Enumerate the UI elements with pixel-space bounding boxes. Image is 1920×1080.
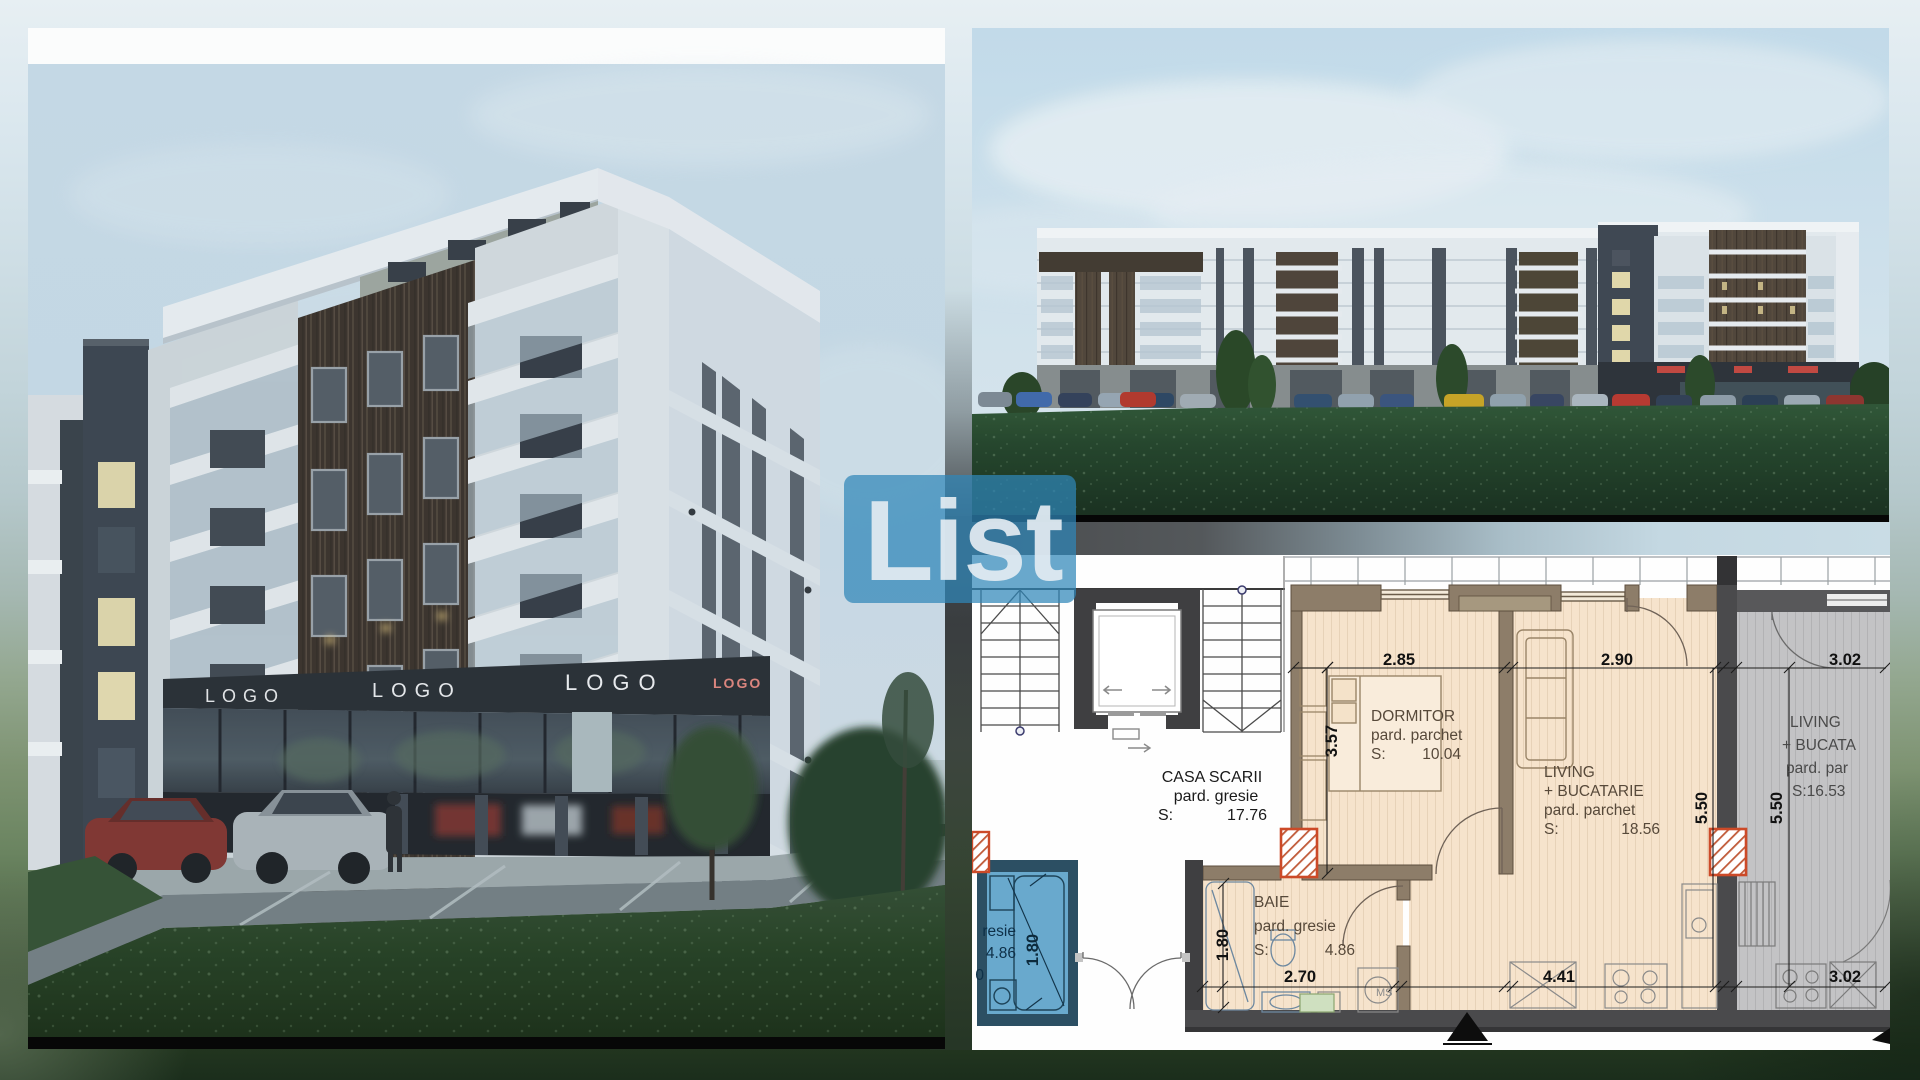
svg-text:4.41: 4.41 <box>1543 968 1575 986</box>
svg-text:2.70: 2.70 <box>1284 968 1316 986</box>
svg-text:4.86: 4.86 <box>986 945 1016 962</box>
svg-text:1.80: 1.80 <box>1024 934 1042 966</box>
svg-text:3.02: 3.02 <box>1829 651 1861 669</box>
svg-text:0: 0 <box>975 967 984 984</box>
svg-text:pard. gresie: pard. gresie <box>1254 918 1336 935</box>
svg-text:LIVING: LIVING <box>1790 714 1841 731</box>
svg-text:2.85: 2.85 <box>1383 651 1415 669</box>
svg-text:pard. gresie: pard. gresie <box>1174 788 1259 805</box>
svg-text:S:: S: <box>1254 942 1269 959</box>
svg-text:+ BUCATA: + BUCATA <box>1782 737 1857 754</box>
svg-text:3.57: 3.57 <box>1323 725 1341 757</box>
svg-text:4.86: 4.86 <box>1325 942 1355 959</box>
svg-text:S:: S: <box>1158 807 1173 824</box>
svg-text:resie: resie <box>982 923 1016 940</box>
svg-text:2.90: 2.90 <box>1601 651 1633 669</box>
svg-text:5.50: 5.50 <box>1768 792 1786 824</box>
svg-text:pard. parchet: pard. parchet <box>1544 802 1636 819</box>
svg-text:S:16.53: S:16.53 <box>1792 783 1845 800</box>
svg-text:3.02: 3.02 <box>1829 968 1861 986</box>
svg-text:5.50: 5.50 <box>1693 792 1711 824</box>
svg-text:BAIE: BAIE <box>1254 894 1289 911</box>
svg-text:1.80: 1.80 <box>1214 929 1232 961</box>
svg-text:pard. parchet: pard. parchet <box>1371 727 1463 744</box>
svg-text:S:: S: <box>1371 746 1386 763</box>
svg-text:DORMITOR: DORMITOR <box>1371 708 1455 725</box>
svg-text:18.56: 18.56 <box>1621 821 1660 838</box>
svg-text:17.76: 17.76 <box>1227 807 1267 824</box>
svg-text:LIVING: LIVING <box>1544 764 1595 781</box>
svg-text:S:: S: <box>1544 821 1559 838</box>
svg-text:MS: MS <box>1376 987 1393 999</box>
svg-text:pard. par: pard. par <box>1786 760 1848 777</box>
svg-text:10.04: 10.04 <box>1422 746 1461 763</box>
svg-text:CASA SCARII: CASA SCARII <box>1162 769 1262 786</box>
svg-text:+ BUCATARIE: + BUCATARIE <box>1544 783 1644 800</box>
